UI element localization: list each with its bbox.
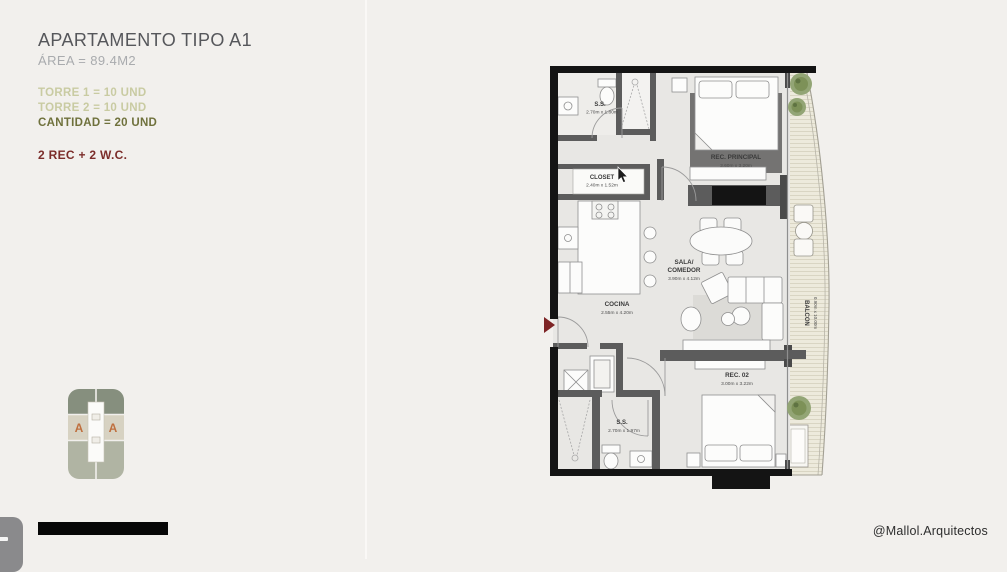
tower-key-plan-icon: A A: [66, 387, 126, 480]
closet-icon: [573, 169, 644, 194]
balcony-chair-icon: [794, 239, 813, 256]
dims-rec-principal: 3.60m x 3.20m: [720, 163, 752, 169]
footer-black-bar: [38, 522, 168, 535]
slide: APARTAMENTO TIPO A1 ÁREA = 89.4M2 TORRE …: [0, 0, 1007, 559]
label-sala-1: SALA/: [675, 259, 694, 266]
label-ss-bottom: S.S.: [616, 420, 628, 426]
label-ss-top: S.S.: [594, 102, 606, 108]
label-sala-2: COMEDOR: [668, 267, 701, 274]
label-closet: CLOSET: [590, 175, 615, 181]
dims-closet: 2.40m x 1.52m: [586, 183, 618, 189]
balcony-chair-icon: [794, 205, 813, 222]
dims-balcon: 0.90m x 10.00m: [813, 297, 818, 330]
torre1-count: TORRE 1 = 10 UND: [38, 87, 146, 99]
panel-divider: [365, 0, 367, 559]
dims-sala: 3.90m x 4.12m: [668, 276, 700, 282]
label-balcon: BALCON: [803, 300, 809, 326]
dims-cocina: 2.55m x 4.20m: [601, 310, 633, 316]
page-title: APARTAMENTO TIPO A1: [38, 30, 252, 51]
area-subtitle: ÁREA = 89.4M2: [38, 53, 136, 68]
tv-wall: [712, 186, 766, 205]
unit-a-left-label: A: [75, 421, 84, 435]
credit-text: @Mallol.Arquitectos: [873, 524, 988, 538]
minimize-button[interactable]: [0, 517, 23, 572]
cantidad-total: CANTIDAD = 20 UND: [38, 117, 157, 129]
rooms-summary: 2 REC + 2 W.C.: [38, 148, 127, 162]
minimize-icon: [0, 537, 8, 541]
label-cocina: COCINA: [605, 301, 630, 308]
floor-plan: S.S. 2.70m x 1.80m REC. PRINCIPAL 3.60m …: [540, 55, 840, 495]
dims-ss-bottom: 2.70m x 1.97m: [608, 428, 640, 434]
torre2-count: TORRE 2 = 10 UND: [38, 102, 146, 114]
label-rec02: REC. 02: [725, 372, 749, 379]
dims-rec02: 3.00m x 3.22m: [721, 381, 753, 387]
dims-ss-top: 2.70m x 1.80m: [586, 110, 618, 116]
unit-a-right-label: A: [109, 421, 118, 435]
label-rec-principal: REC. PRINCIPAL: [711, 154, 761, 161]
balcony-table-icon: [796, 223, 813, 240]
